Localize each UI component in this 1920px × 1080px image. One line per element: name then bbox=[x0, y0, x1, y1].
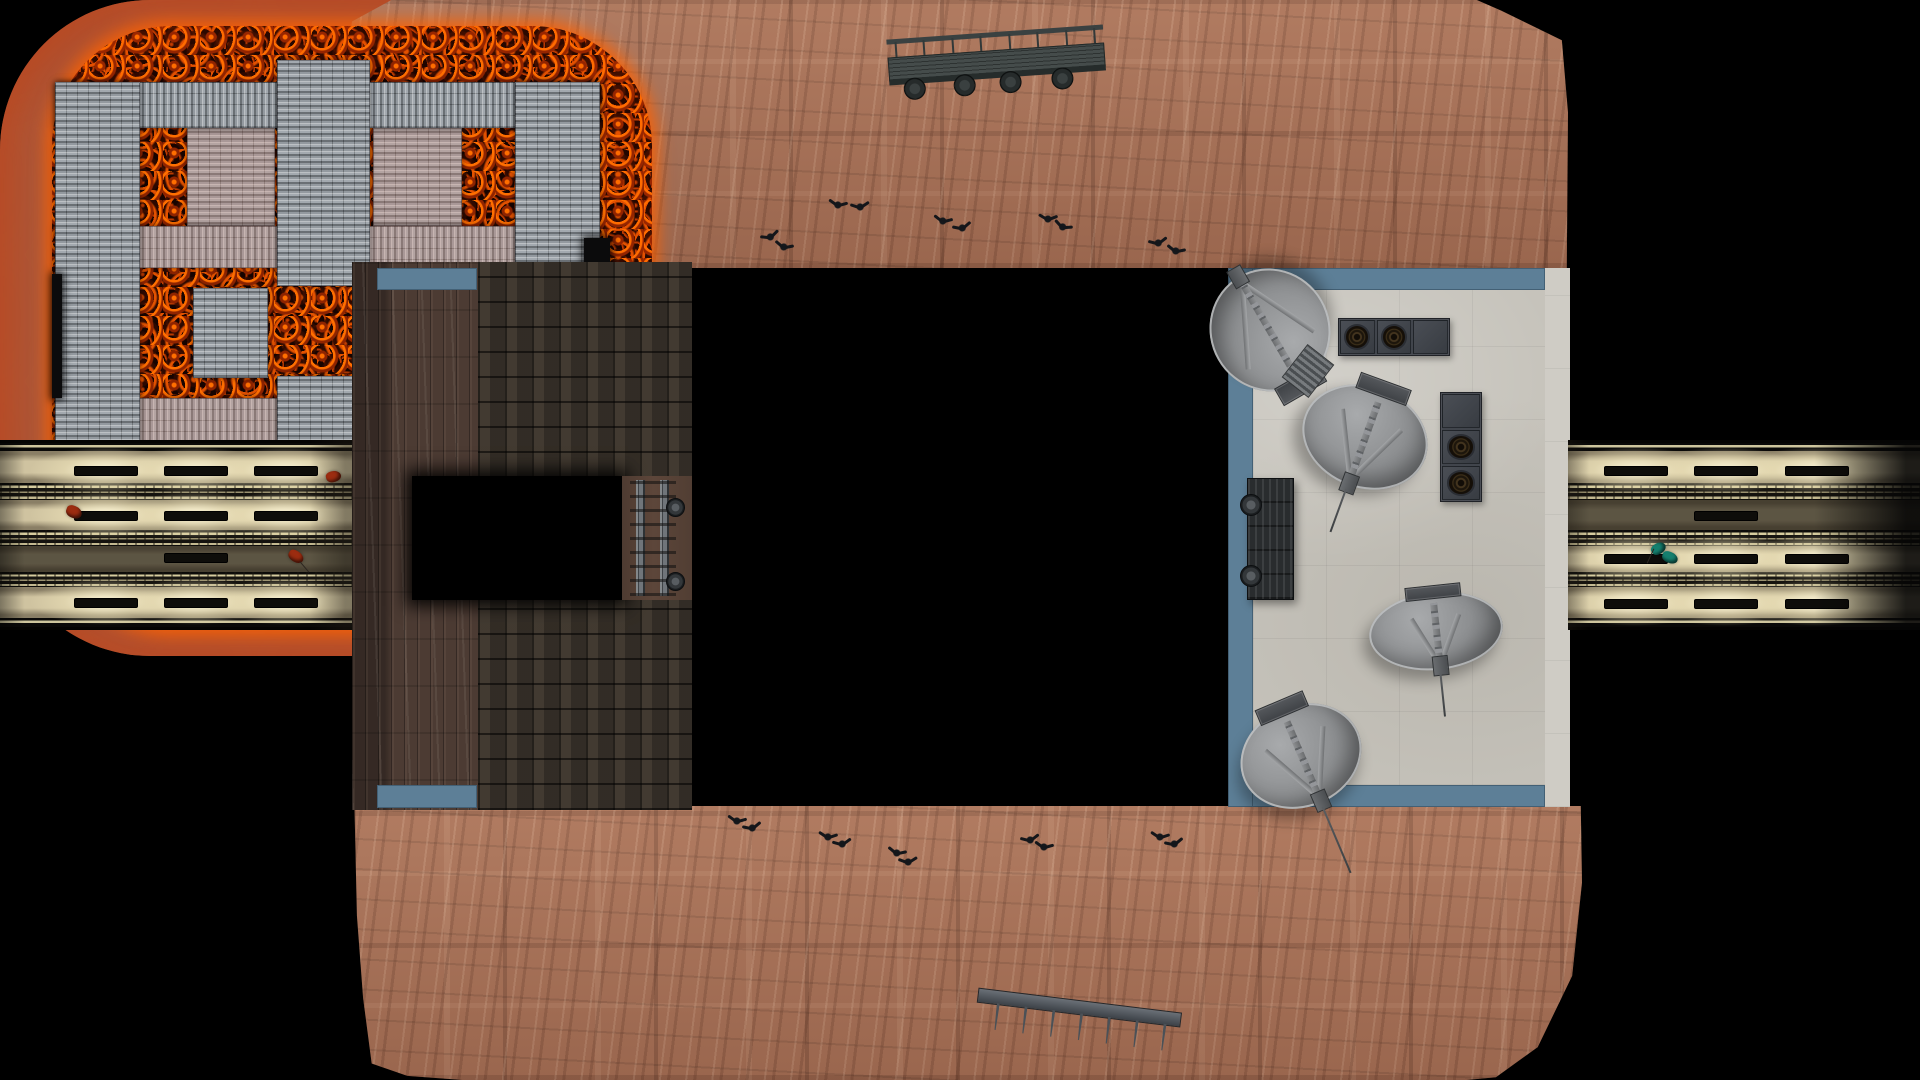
ceiling-light-fixture bbox=[1785, 466, 1849, 476]
grate-square-left[interactable] bbox=[193, 288, 268, 378]
brick-path-top[interactable] bbox=[478, 262, 692, 478]
brick-path-bottom[interactable] bbox=[478, 600, 692, 810]
cart-wheel-bottom bbox=[666, 572, 685, 591]
grate-patch-top-left[interactable] bbox=[187, 128, 275, 226]
ceiling-light-fixture bbox=[1604, 466, 1668, 476]
ceiling-light-fixture bbox=[254, 511, 318, 521]
ceiling-light-fixture bbox=[1694, 599, 1758, 609]
blue-trim-bottom-right bbox=[1228, 785, 1545, 807]
mine-entrance-doorway[interactable] bbox=[412, 476, 622, 600]
blue-spawn-pad-bottom-left bbox=[377, 785, 477, 808]
mine-cart-track bbox=[622, 476, 692, 600]
ceiling-light-fixture bbox=[74, 598, 138, 608]
blue-trim-left-column bbox=[1228, 268, 1253, 807]
rail-tunnel-right[interactable] bbox=[1568, 440, 1920, 630]
walkway-col-center-top[interactable] bbox=[277, 60, 370, 286]
ceiling-light-fixture bbox=[74, 466, 138, 476]
ceiling-light-fixture bbox=[1694, 511, 1758, 521]
rock-canyon-bottom bbox=[352, 806, 1582, 1080]
blue-spawn-pad-top-left bbox=[377, 268, 477, 290]
ceiling-light-fixture bbox=[164, 598, 228, 608]
ceiling-light-fixture bbox=[1694, 466, 1758, 476]
ceiling-light-fixture bbox=[74, 511, 138, 521]
ceiling-light-fixture bbox=[164, 553, 228, 563]
ceiling-light-fixture bbox=[1694, 554, 1758, 564]
ceiling-light-fixture bbox=[254, 598, 318, 608]
grate-patch-top-right[interactable] bbox=[373, 128, 462, 226]
ceiling-light-fixture bbox=[1604, 554, 1668, 564]
ceiling-light-fixture bbox=[1785, 554, 1849, 564]
map-overview bbox=[0, 0, 1920, 1080]
rail-tunnel-left[interactable] bbox=[0, 440, 352, 630]
ceiling-light-fixture bbox=[254, 466, 318, 476]
arena-left-doorway-shadow bbox=[52, 274, 62, 398]
cart-wheel-top bbox=[666, 498, 685, 517]
ceiling-light-fixture bbox=[1604, 599, 1668, 609]
concrete-edge-strip bbox=[1545, 268, 1570, 807]
concrete-yard[interactable] bbox=[1253, 290, 1545, 785]
ceiling-light-fixture bbox=[1785, 599, 1849, 609]
ceiling-light-fixture bbox=[164, 511, 228, 521]
ceiling-light-fixture bbox=[164, 466, 228, 476]
blue-trim-top-right bbox=[1228, 268, 1545, 290]
